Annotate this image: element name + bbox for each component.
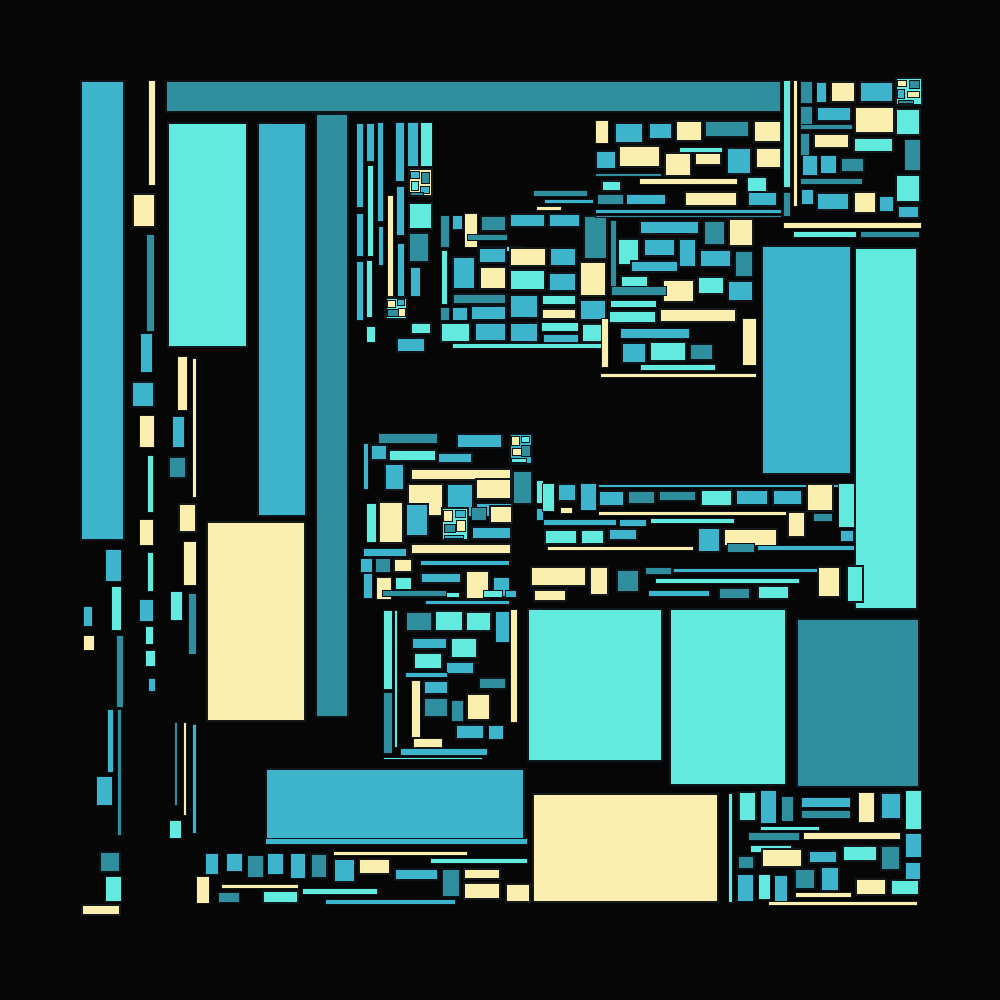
art-rect bbox=[548, 272, 577, 292]
art-rect bbox=[411, 680, 421, 738]
art-rect bbox=[853, 137, 894, 153]
art-rect bbox=[489, 505, 513, 524]
art-rect bbox=[794, 868, 816, 890]
art-rect bbox=[801, 189, 814, 205]
art-rect bbox=[363, 443, 369, 490]
art-rect bbox=[820, 866, 840, 892]
art-rect bbox=[384, 463, 405, 491]
art-rect bbox=[411, 637, 448, 650]
art-rect bbox=[423, 697, 449, 718]
art-rect bbox=[734, 250, 754, 278]
art-rect bbox=[544, 529, 578, 545]
art-rect bbox=[726, 147, 752, 175]
art-rect bbox=[450, 637, 478, 659]
art-rect bbox=[802, 155, 818, 176]
art-rect bbox=[405, 672, 448, 678]
art-rect bbox=[742, 318, 757, 366]
art-rect bbox=[796, 618, 920, 788]
art-rect bbox=[600, 373, 757, 378]
art-rect bbox=[378, 501, 404, 544]
art-rect bbox=[148, 80, 156, 186]
art-rect bbox=[735, 489, 769, 506]
art-rect bbox=[549, 247, 577, 267]
art-rect bbox=[846, 565, 864, 603]
art-rect bbox=[370, 444, 388, 461]
art-rect bbox=[801, 810, 851, 819]
art-rect bbox=[860, 231, 920, 238]
art-rect bbox=[221, 884, 299, 889]
art-rect bbox=[619, 519, 647, 527]
art-rect bbox=[854, 106, 895, 134]
art-rect bbox=[444, 524, 456, 533]
art-rect bbox=[855, 878, 887, 896]
art-rect bbox=[366, 326, 376, 343]
art-rect bbox=[146, 234, 155, 332]
art-rect bbox=[117, 709, 122, 836]
art-rect bbox=[356, 213, 364, 257]
art-rect bbox=[105, 549, 122, 582]
art-rect bbox=[904, 139, 921, 171]
art-rect bbox=[640, 364, 716, 371]
art-rect bbox=[895, 108, 921, 136]
art-rect bbox=[859, 81, 894, 103]
art-rect bbox=[738, 791, 757, 822]
art-rect bbox=[854, 247, 918, 610]
art-rect bbox=[512, 470, 533, 505]
art-rect bbox=[813, 133, 850, 149]
art-rect bbox=[728, 793, 733, 903]
art-rect bbox=[83, 606, 93, 627]
art-rect bbox=[597, 194, 624, 205]
art-rect bbox=[795, 892, 852, 898]
art-rect bbox=[396, 337, 426, 353]
art-rect bbox=[451, 700, 464, 722]
art-rect bbox=[557, 483, 577, 502]
art-rect bbox=[247, 855, 264, 878]
art-rect bbox=[800, 81, 813, 104]
art-rect bbox=[595, 209, 782, 214]
art-rect bbox=[452, 343, 608, 349]
art-rect bbox=[806, 483, 834, 512]
art-rect bbox=[107, 709, 114, 773]
art-rect bbox=[648, 122, 673, 140]
art-rect bbox=[105, 876, 122, 902]
art-rect bbox=[387, 195, 394, 297]
art-rect bbox=[478, 677, 507, 690]
art-rect bbox=[440, 215, 450, 248]
art-rect bbox=[907, 91, 920, 98]
art-rect bbox=[218, 892, 240, 903]
art-rect bbox=[408, 202, 433, 230]
art-rect bbox=[774, 875, 788, 902]
art-rect bbox=[840, 157, 865, 173]
art-rect bbox=[410, 543, 512, 555]
art-rect bbox=[116, 635, 124, 708]
art-rect bbox=[360, 558, 373, 573]
art-rect bbox=[83, 635, 95, 651]
art-rect bbox=[395, 122, 405, 182]
art-rect bbox=[580, 483, 597, 511]
art-rect bbox=[479, 266, 507, 290]
art-rect bbox=[383, 757, 483, 760]
art-rect bbox=[383, 692, 393, 754]
art-rect bbox=[697, 527, 721, 553]
art-rect bbox=[589, 566, 609, 596]
art-rect bbox=[601, 318, 609, 368]
art-rect bbox=[495, 611, 510, 643]
art-rect bbox=[165, 80, 782, 113]
art-rect bbox=[383, 610, 393, 690]
art-rect bbox=[511, 436, 520, 446]
art-rect bbox=[580, 529, 605, 545]
art-rect bbox=[395, 577, 412, 590]
art-rect bbox=[463, 868, 501, 880]
art-rect bbox=[905, 790, 922, 830]
art-rect bbox=[699, 249, 732, 268]
art-rect bbox=[614, 122, 644, 144]
art-rect bbox=[145, 650, 156, 667]
art-rect bbox=[673, 568, 825, 573]
art-rect bbox=[879, 196, 894, 212]
art-rect bbox=[757, 585, 790, 600]
art-rect bbox=[897, 89, 905, 99]
art-rect bbox=[541, 308, 577, 320]
art-rect bbox=[408, 232, 430, 263]
art-rect bbox=[378, 433, 438, 444]
art-rect bbox=[801, 797, 851, 808]
art-rect bbox=[669, 608, 787, 786]
art-rect bbox=[737, 855, 755, 870]
art-rect bbox=[265, 838, 528, 845]
art-rect bbox=[544, 199, 594, 204]
art-rect bbox=[443, 510, 453, 522]
art-rect bbox=[621, 342, 647, 364]
art-rect bbox=[813, 513, 833, 522]
art-rect bbox=[620, 328, 690, 339]
art-rect bbox=[465, 611, 492, 632]
art-rect bbox=[700, 489, 733, 507]
art-rect bbox=[407, 122, 419, 167]
art-rect bbox=[768, 901, 918, 906]
art-rect bbox=[611, 286, 667, 296]
art-rect bbox=[816, 82, 827, 103]
art-rect bbox=[548, 213, 581, 228]
art-rect bbox=[703, 220, 726, 246]
art-rect bbox=[761, 848, 803, 868]
art-rect bbox=[664, 152, 692, 177]
art-rect bbox=[132, 193, 156, 228]
art-rect bbox=[452, 215, 463, 230]
art-rect bbox=[177, 356, 188, 411]
art-rect bbox=[420, 122, 433, 167]
art-rect bbox=[541, 322, 579, 332]
art-rect bbox=[378, 226, 384, 266]
art-rect bbox=[533, 589, 567, 602]
art-rect bbox=[413, 652, 443, 670]
art-rect bbox=[728, 218, 754, 247]
art-rect bbox=[509, 247, 547, 267]
art-rect bbox=[430, 858, 528, 864]
art-rect bbox=[363, 548, 407, 557]
art-rect bbox=[178, 503, 197, 533]
art-rect bbox=[148, 678, 156, 692]
art-rect bbox=[397, 299, 405, 306]
art-rect bbox=[398, 308, 406, 317]
art-rect bbox=[183, 722, 187, 816]
art-rect bbox=[727, 543, 755, 553]
art-rect bbox=[536, 206, 562, 211]
art-rect bbox=[897, 80, 907, 87]
art-rect bbox=[147, 455, 154, 513]
art-rect bbox=[626, 194, 666, 205]
art-rect bbox=[96, 776, 113, 806]
art-rect bbox=[684, 191, 738, 207]
art-rect bbox=[413, 738, 443, 748]
art-rect bbox=[444, 535, 464, 539]
art-rect bbox=[689, 343, 714, 361]
art-rect bbox=[748, 832, 800, 841]
art-rect bbox=[396, 186, 405, 236]
art-rect bbox=[420, 572, 462, 584]
art-rect bbox=[618, 145, 661, 168]
art-rect bbox=[394, 610, 398, 748]
art-rect bbox=[382, 590, 447, 597]
art-rect bbox=[817, 566, 841, 598]
art-rect bbox=[509, 294, 539, 319]
art-rect bbox=[639, 220, 700, 235]
art-rect bbox=[890, 879, 920, 896]
art-rect bbox=[267, 853, 284, 875]
art-rect bbox=[583, 215, 608, 260]
art-rect bbox=[648, 590, 710, 597]
art-rect bbox=[645, 567, 672, 575]
art-rect bbox=[358, 858, 391, 875]
art-rect bbox=[858, 792, 875, 823]
art-rect bbox=[265, 768, 525, 843]
art-rect bbox=[840, 530, 854, 542]
art-rect bbox=[616, 569, 640, 593]
art-rect bbox=[803, 832, 901, 840]
art-rect bbox=[897, 205, 920, 219]
art-rect bbox=[760, 790, 777, 824]
art-rect bbox=[167, 122, 248, 348]
art-rect bbox=[170, 591, 183, 621]
art-rect bbox=[397, 243, 405, 297]
art-rect bbox=[423, 680, 449, 695]
art-rect bbox=[140, 333, 153, 373]
art-rect bbox=[533, 190, 588, 197]
art-rect bbox=[781, 796, 794, 822]
art-rect bbox=[808, 850, 838, 864]
art-rect bbox=[192, 358, 197, 498]
art-rect bbox=[139, 519, 154, 546]
art-rect bbox=[356, 123, 364, 208]
art-rect bbox=[909, 80, 920, 89]
art-rect bbox=[262, 890, 299, 904]
art-rect bbox=[595, 173, 662, 177]
art-rect bbox=[455, 510, 466, 518]
art-rect bbox=[196, 876, 210, 904]
art-rect bbox=[694, 152, 722, 166]
art-rect bbox=[509, 322, 539, 343]
art-rect bbox=[172, 416, 185, 448]
art-rect bbox=[131, 381, 155, 408]
art-rect bbox=[463, 882, 501, 900]
art-rect bbox=[783, 222, 922, 229]
art-rect bbox=[405, 503, 429, 537]
art-rect bbox=[800, 133, 810, 156]
art-rect bbox=[541, 294, 577, 306]
art-rect bbox=[183, 541, 197, 586]
art-rect bbox=[467, 234, 508, 241]
art-rect bbox=[410, 171, 420, 179]
art-rect bbox=[630, 260, 679, 273]
art-rect bbox=[542, 483, 555, 512]
art-rect bbox=[456, 433, 503, 449]
art-rect bbox=[434, 610, 464, 632]
generative-artwork bbox=[0, 0, 1000, 1000]
art-rect bbox=[655, 578, 800, 584]
art-rect bbox=[356, 261, 364, 321]
art-rect bbox=[880, 845, 901, 871]
art-rect bbox=[747, 191, 778, 207]
art-rect bbox=[452, 307, 468, 321]
art-rect bbox=[658, 490, 697, 502]
art-rect bbox=[466, 693, 491, 721]
art-rect bbox=[377, 122, 384, 222]
art-rect bbox=[838, 483, 855, 528]
art-rect bbox=[601, 180, 622, 192]
art-rect bbox=[139, 415, 155, 448]
art-rect bbox=[437, 452, 473, 464]
art-rect bbox=[483, 590, 503, 598]
art-rect bbox=[608, 310, 657, 324]
art-rect bbox=[816, 106, 852, 122]
art-rect bbox=[206, 521, 306, 722]
art-rect bbox=[718, 587, 751, 600]
art-rect bbox=[650, 518, 735, 524]
art-rect bbox=[898, 100, 914, 104]
art-rect bbox=[333, 858, 356, 883]
art-rect bbox=[598, 490, 625, 507]
art-rect bbox=[452, 293, 507, 305]
art-rect bbox=[441, 868, 461, 898]
art-rect bbox=[697, 276, 725, 295]
art-rect bbox=[793, 231, 857, 238]
art-rect bbox=[366, 503, 377, 543]
art-rect bbox=[509, 213, 546, 228]
art-rect bbox=[387, 300, 396, 308]
art-rect bbox=[758, 874, 771, 900]
art-rect bbox=[410, 322, 432, 335]
art-rect bbox=[192, 724, 197, 834]
art-rect bbox=[543, 519, 617, 526]
art-rect bbox=[145, 626, 154, 645]
art-rect bbox=[598, 511, 787, 516]
art-rect bbox=[111, 586, 122, 631]
art-rect bbox=[505, 883, 531, 903]
art-rect bbox=[139, 599, 154, 622]
art-rect bbox=[366, 123, 375, 162]
art-rect bbox=[480, 215, 507, 232]
art-rect bbox=[816, 192, 850, 211]
art-rect bbox=[510, 609, 518, 723]
art-rect bbox=[853, 191, 877, 214]
art-rect bbox=[394, 868, 439, 881]
art-rect bbox=[147, 552, 154, 592]
art-rect bbox=[478, 247, 507, 264]
art-rect bbox=[505, 590, 517, 598]
art-rect bbox=[579, 261, 607, 297]
art-rect bbox=[375, 558, 391, 573]
art-rect bbox=[737, 874, 754, 902]
art-rect bbox=[257, 122, 307, 517]
art-rect bbox=[842, 845, 878, 862]
art-rect bbox=[787, 511, 806, 538]
art-rect bbox=[400, 748, 488, 756]
art-rect bbox=[755, 147, 782, 169]
art-rect bbox=[895, 174, 921, 203]
art-rect bbox=[452, 256, 476, 290]
art-rect bbox=[410, 267, 421, 297]
art-rect bbox=[488, 725, 504, 740]
art-rect bbox=[610, 220, 617, 292]
art-rect bbox=[608, 528, 638, 541]
art-rect bbox=[440, 307, 450, 321]
art-rect bbox=[761, 245, 852, 475]
art-rect bbox=[464, 213, 478, 248]
art-rect bbox=[169, 820, 182, 839]
art-rect bbox=[81, 904, 121, 916]
art-rect bbox=[420, 560, 510, 566]
art-rect bbox=[475, 478, 512, 500]
art-rect bbox=[302, 888, 378, 895]
art-rect bbox=[659, 308, 737, 323]
art-rect bbox=[290, 853, 306, 879]
art-rect bbox=[521, 445, 531, 457]
art-rect bbox=[315, 113, 349, 718]
art-rect bbox=[205, 853, 219, 875]
art-rect bbox=[310, 853, 328, 879]
art-rect bbox=[471, 526, 512, 540]
art-rect bbox=[905, 833, 922, 858]
art-rect bbox=[560, 507, 573, 514]
art-rect bbox=[393, 558, 413, 573]
art-rect bbox=[474, 322, 507, 342]
art-rect bbox=[363, 573, 373, 599]
art-rect bbox=[188, 593, 197, 655]
art-rect bbox=[511, 458, 527, 463]
art-rect bbox=[530, 566, 587, 587]
art-rect bbox=[820, 155, 837, 174]
art-rect bbox=[532, 793, 719, 903]
art-rect bbox=[783, 80, 791, 188]
art-rect bbox=[445, 661, 475, 675]
art-rect bbox=[367, 165, 374, 257]
art-rect bbox=[226, 853, 243, 872]
art-rect bbox=[783, 192, 791, 217]
art-rect bbox=[800, 178, 863, 185]
art-rect bbox=[649, 341, 687, 362]
art-rect bbox=[325, 899, 456, 905]
art-rect bbox=[527, 608, 663, 762]
art-rect bbox=[333, 851, 468, 856]
art-rect bbox=[421, 172, 430, 184]
art-rect bbox=[627, 490, 656, 505]
art-rect bbox=[793, 80, 798, 207]
art-rect bbox=[757, 545, 855, 551]
art-rect bbox=[99, 851, 121, 873]
